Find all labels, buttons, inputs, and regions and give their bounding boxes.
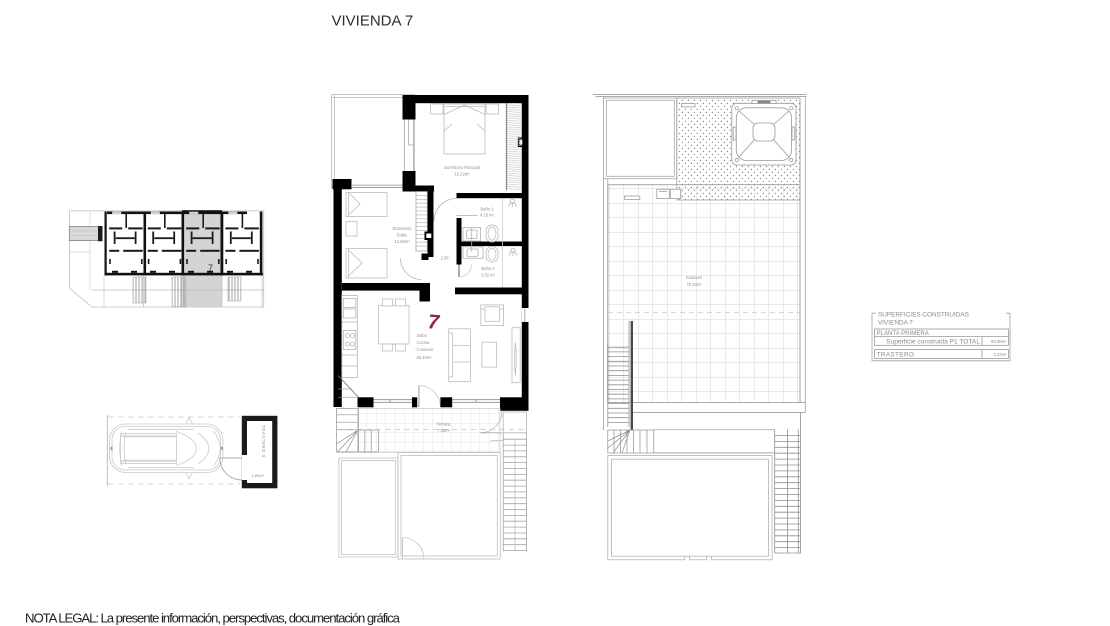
svg-text:Baño 1: Baño 1: [481, 207, 495, 212]
svg-text:70.33m²: 70.33m²: [686, 282, 702, 287]
svg-text:15.22m²: 15.22m²: [454, 172, 470, 177]
svg-text:Cocina: Cocina: [417, 340, 430, 345]
svg-text:Dormitorio: Dormitorio: [393, 226, 413, 231]
svg-text:TRASTERO: TRASTERO: [877, 352, 915, 359]
svg-text:12.06m²: 12.06m²: [394, 239, 410, 244]
svg-text:Salón: Salón: [417, 333, 428, 338]
svg-text:4.16 m²: 4.16 m²: [480, 213, 495, 218]
svg-text:NOTA LEGAL: La presente inform: NOTA LEGAL: La presente información, per…: [25, 610, 401, 625]
svg-text:7: 7: [208, 263, 213, 273]
svg-text:Dormitorio Principal: Dormitorio Principal: [444, 165, 480, 170]
svg-text:7.56m²: 7.56m²: [437, 428, 450, 433]
svg-text:26.40m²: 26.40m²: [417, 355, 433, 360]
svg-text:PLANTA PRIMERA: PLANTA PRIMERA: [877, 330, 930, 337]
svg-text:3.22m²: 3.22m²: [993, 352, 1007, 357]
svg-text:Doble: Doble: [397, 233, 408, 238]
svg-text:Terraza: Terraza: [437, 422, 451, 427]
svg-text:TRASTERO 3: TRASTERO 3: [261, 425, 266, 458]
svg-text:SUPERFICIES CONSTRUIDAS: SUPERFICIES CONSTRUIDAS: [878, 312, 969, 319]
svg-text:VIVIENDA 7: VIVIENDA 7: [878, 320, 913, 327]
svg-text:VIVIENDA 7: VIVIENDA 7: [332, 13, 414, 30]
svg-text:7: 7: [427, 311, 441, 334]
svg-text:Baño 2: Baño 2: [482, 266, 496, 271]
svg-text:2.08: 2.08: [441, 256, 450, 261]
svg-text:84.98m²: 84.98m²: [991, 339, 1007, 344]
svg-text:Solarium: Solarium: [686, 275, 703, 280]
svg-text:Superficie construida P1 TOTAL: Superficie construida P1 TOTAL: [886, 339, 980, 346]
svg-text:2.84m²: 2.84m²: [252, 473, 265, 478]
svg-text:3.52 m²: 3.52 m²: [481, 273, 496, 278]
svg-text:Comedor: Comedor: [417, 347, 434, 352]
